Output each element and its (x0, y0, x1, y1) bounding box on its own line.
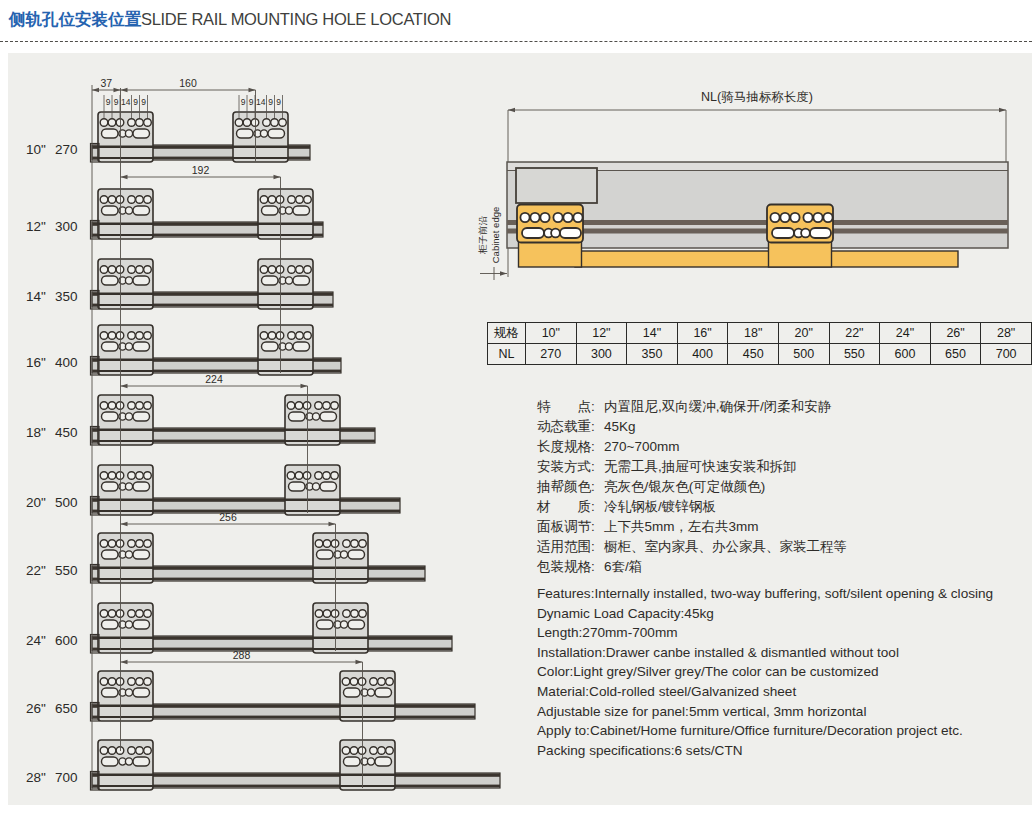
specs-chinese: 特 点:内置阻尼,双向缓冲,确保开/闭柔和安静动态载重:45Kg长度规格:270… (537, 397, 847, 577)
size-table: 规格10"12"14"16"18"20"22"24"26"28"NL270300… (487, 322, 1032, 365)
rail-row-500: 20"500 (26, 465, 400, 515)
svg-text:37: 37 (100, 77, 112, 89)
spec-line-en: Adjustable size for panel:5mm vertical, … (537, 702, 993, 722)
spec-line-en: Features:Internally installed, two-way b… (537, 584, 993, 604)
svg-text:9: 9 (268, 97, 273, 107)
spec-line-zh: 面板调节:上下共5mm，左右共3mm (537, 517, 847, 537)
table-cell: 12" (576, 323, 627, 344)
svg-text:9: 9 (114, 97, 119, 107)
spec-label: 安装方式: (537, 457, 604, 477)
spec-value: 冷轧钢板/镀锌钢板 (604, 499, 716, 514)
table-cell: 20" (778, 323, 829, 344)
svg-text:9: 9 (241, 97, 246, 107)
title-divider (0, 41, 1032, 42)
spec-label: 材 质: (537, 497, 604, 517)
spec-label: 长度规格: (537, 437, 604, 457)
table-cell: 26" (930, 323, 981, 344)
table-cell: 24" (880, 323, 931, 344)
spec-label: 动态载重: (537, 417, 604, 437)
svg-text:400: 400 (55, 355, 78, 370)
table-cell: 650 (930, 344, 981, 365)
table-cell: 22" (829, 323, 880, 344)
svg-text:14: 14 (121, 97, 131, 107)
spec-line-zh: 适用范围:橱柜、室内家具、办公家具、家装工程等 (537, 537, 847, 557)
table-cell: 18" (728, 323, 779, 344)
spec-line-en: Material:Cold-rolled steel/Galvanized sh… (537, 682, 993, 702)
page-title: 侧轨孔位安装位置SLIDE RAIL MOUNTING HOLE LOCATIO… (9, 9, 451, 31)
svg-text:24": 24" (26, 633, 46, 648)
svg-text:650: 650 (55, 701, 78, 716)
spec-line-zh: 抽帮颜色:亮灰色/银灰色(可定做颜色) (537, 477, 847, 497)
assembled-slide-diagram: NL(骑马抽标称长度)柜子前沿Cabinet edge (477, 90, 1008, 280)
rail-row-350: 14"350 (26, 259, 333, 309)
svg-text:270: 270 (55, 142, 78, 157)
svg-text:18": 18" (26, 425, 46, 440)
table-cell: 270 (526, 344, 577, 365)
svg-text:28": 28" (26, 770, 46, 785)
table-cell: 规格 (488, 323, 526, 344)
svg-text:600: 600 (55, 633, 78, 648)
spec-value: 45Kg (604, 419, 636, 434)
cabinet-edge-label-zh: 柜子前沿 (477, 216, 488, 256)
rail-row-300: 12"300 (26, 189, 323, 239)
svg-text:9: 9 (141, 97, 146, 107)
svg-text:14": 14" (26, 289, 46, 304)
spec-line-en: Color:Light grey/Silver grey/The color c… (537, 662, 993, 682)
spec-line-en: Installation:Drawer canbe installed & di… (537, 643, 993, 663)
spec-value: 内置阻尼,双向缓冲,确保开/闭柔和安静 (604, 399, 831, 414)
table-nl-row: NL270300350400450500550600650700 (488, 344, 1032, 365)
rail-row-550: 22"550 (26, 533, 425, 583)
table-cell: 600 (880, 344, 931, 365)
spec-line-zh: 材 质:冷轧钢板/镀锌钢板 (537, 497, 847, 517)
table-header-row: 规格10"12"14"16"18"20"22"24"26"28" (488, 323, 1032, 344)
spec-label: 抽帮颜色: (537, 477, 604, 497)
table-cell: NL (488, 344, 526, 365)
svg-text:224: 224 (205, 373, 223, 385)
spec-value: 无需工具,抽屉可快速安装和拆卸 (604, 459, 797, 474)
rail-row-650: 26"650 (26, 671, 475, 721)
table-cell: 10" (526, 323, 577, 344)
spec-line-en: Dynamic Load Capacity:45kg (537, 604, 993, 624)
spec-line-en: Packing specifications:6 sets/CTN (537, 741, 993, 761)
table-cell: 300 (576, 344, 627, 365)
catalog-page: 侧轨孔位安装位置SLIDE RAIL MOUNTING HOLE LOCATIO… (0, 0, 1032, 814)
spec-line-en: Length:270mm-700mm (537, 623, 993, 643)
table-cell: 400 (677, 344, 728, 365)
svg-text:256: 256 (219, 511, 237, 523)
svg-text:450: 450 (55, 425, 78, 440)
svg-text:9: 9 (249, 97, 254, 107)
spec-value: 270~700mm (604, 439, 679, 454)
specs-english: Features:Internally installed, two-way b… (537, 584, 993, 760)
spec-line-en: Apply to:Cabinet/Home furniture/Office f… (537, 721, 993, 741)
table-cell: 28" (981, 323, 1032, 344)
svg-text:300: 300 (55, 219, 78, 234)
rail-row-600: 24"600 (26, 603, 452, 653)
svg-text:22": 22" (26, 563, 46, 578)
spec-line-zh: 长度规格:270~700mm (537, 437, 847, 457)
svg-text:12": 12" (26, 219, 46, 234)
svg-text:10": 10" (26, 142, 46, 157)
rail-row-450: 18"450 (26, 395, 375, 445)
rail-row-270: 10"270 (26, 112, 310, 162)
svg-text:14: 14 (256, 97, 266, 107)
spec-value: 橱柜、室内家具、办公家具、家装工程等 (604, 539, 847, 554)
spec-label: 面板调节: (537, 517, 604, 537)
svg-text:550: 550 (55, 563, 78, 578)
svg-text:160: 160 (179, 77, 197, 89)
spec-label: 包装规格: (537, 557, 604, 577)
svg-text:500: 500 (55, 495, 78, 510)
svg-text:9: 9 (276, 97, 281, 107)
svg-text:192: 192 (192, 164, 210, 176)
svg-text:20": 20" (26, 495, 46, 510)
svg-text:9: 9 (106, 97, 111, 107)
table-cell: 450 (728, 344, 779, 365)
spec-label: 特 点: (537, 397, 604, 417)
rail-row-400: 16"400 (26, 325, 341, 375)
table-cell: 16" (677, 323, 728, 344)
table-cell: 14" (627, 323, 678, 344)
spec-value: 亮灰色/银灰色(可定做颜色) (604, 479, 765, 494)
spec-line-zh: 动态载重:45Kg (537, 417, 847, 437)
spec-line-zh: 安装方式:无需工具,抽屉可快速安装和拆卸 (537, 457, 847, 477)
title-en: SLIDE RAIL MOUNTING HOLE LOCATION (141, 10, 451, 28)
svg-text:350: 350 (55, 289, 78, 304)
title-zh: 侧轨孔位安装位置 (9, 10, 141, 28)
table-cell: 550 (829, 344, 880, 365)
table-cell: 700 (981, 344, 1032, 365)
cabinet-edge-label-en: Cabinet edge (490, 207, 501, 264)
svg-text:26": 26" (26, 701, 46, 716)
svg-text:9: 9 (133, 97, 138, 107)
svg-text:288: 288 (233, 649, 251, 661)
spec-value: 6套/箱 (604, 559, 642, 574)
table-cell: 350 (627, 344, 678, 365)
spec-line-zh: 包装规格:6套/箱 (537, 557, 847, 577)
table-cell: 500 (778, 344, 829, 365)
svg-text:16": 16" (26, 355, 46, 370)
spec-value: 上下共5mm，左右共3mm (604, 519, 759, 534)
spec-line-zh: 特 点:内置阻尼,双向缓冲,确保开/闭柔和安静 (537, 397, 847, 417)
spec-label: 适用范围: (537, 537, 604, 557)
svg-text:700: 700 (55, 770, 78, 785)
rail-row-700: 28"700 (26, 740, 500, 790)
svg-text:NL(骑马抽标称长度): NL(骑马抽标称长度) (701, 90, 813, 104)
